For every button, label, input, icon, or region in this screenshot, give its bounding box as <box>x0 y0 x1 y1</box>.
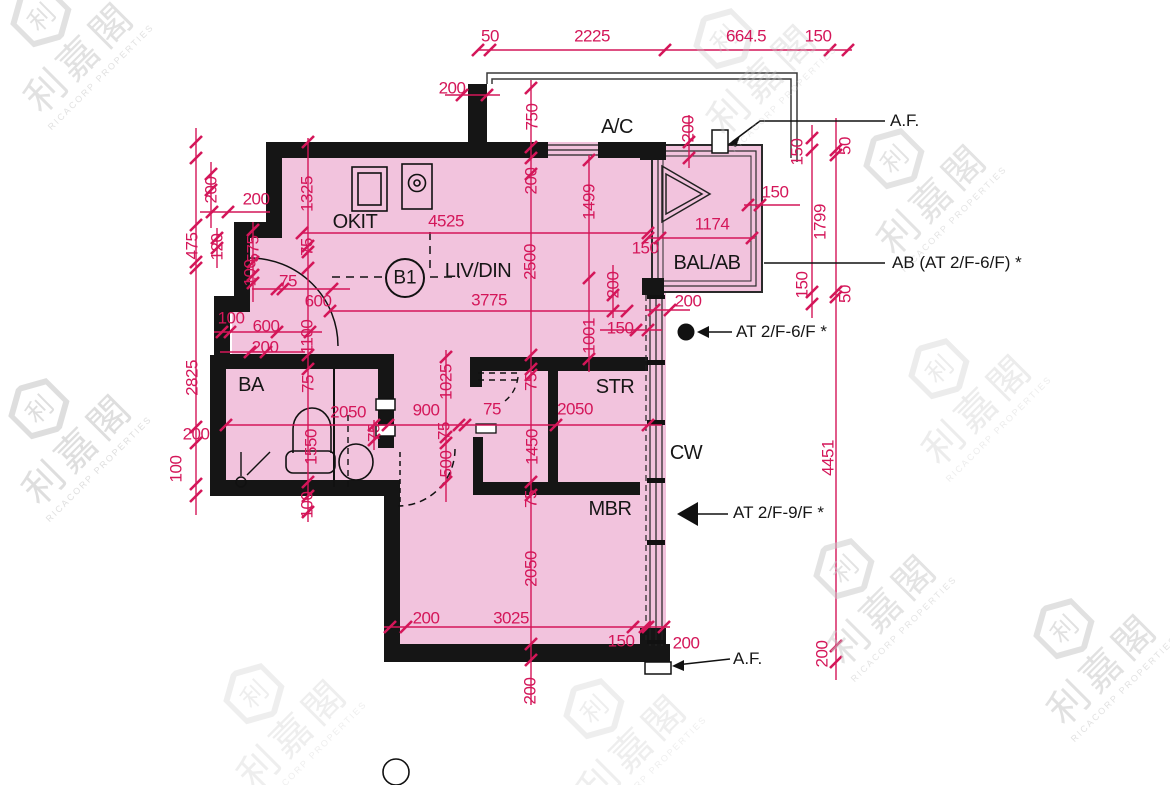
dimension-label: 200 <box>439 80 466 97</box>
wall-segment <box>473 482 640 495</box>
dimension-label: 1325 <box>299 176 316 212</box>
annotation-label: A.F. <box>890 111 919 131</box>
floorplan-page: 利 利嘉閣 RICACORP PROPERTIES 利 利嘉閣 RICACORP… <box>0 0 1170 785</box>
dimension-label: 600 <box>305 293 332 310</box>
room-label: LIV/DIN <box>445 261 512 281</box>
wall-segment <box>548 357 558 483</box>
wall-segment <box>643 648 667 662</box>
wall-segment <box>640 142 666 160</box>
dimension-label: 1799 <box>812 204 829 240</box>
dimension-label: 50 <box>481 28 499 45</box>
dimension-label: 200 <box>523 168 540 195</box>
dimension-label: 200 <box>814 641 831 668</box>
room-label: CW <box>670 443 702 463</box>
wall-segment <box>468 84 487 142</box>
dimension-label: 1025 <box>438 364 455 400</box>
dimension-label: 2050 <box>557 401 593 418</box>
dimension-label: 4525 <box>428 213 464 230</box>
dimension-label: 150 <box>632 240 659 257</box>
af-column-top <box>712 130 728 153</box>
dimension-label: 475 <box>184 233 201 260</box>
dimension-label: 3025 <box>493 610 529 627</box>
af-feature-bottom <box>645 662 671 674</box>
dimension-label: 664.5 <box>726 28 766 45</box>
dimension-label: 200 <box>675 293 702 310</box>
room-label: BAL/AB <box>673 253 740 273</box>
dimension-label: 2050 <box>523 551 540 587</box>
dimension-label: 75 <box>436 422 453 440</box>
wall-segment <box>384 480 400 662</box>
dimension-label: 600 <box>253 318 280 335</box>
dimension-label: 75 <box>299 238 316 256</box>
wall-segment <box>642 278 664 295</box>
annotation-label: AT 2/F-6/F * <box>736 322 827 342</box>
dimension-label: 150 <box>805 28 832 45</box>
dimension-label: 50 <box>837 137 854 155</box>
dimension-label: 100 <box>218 310 245 327</box>
dimension-label: 75 <box>483 401 501 418</box>
dimension-label: 150 <box>608 633 635 650</box>
dimension-label: 2500 <box>522 244 539 280</box>
dimension-label: 200 <box>203 177 220 204</box>
dimension-label: 50 <box>837 285 854 303</box>
dimension-label: 200 <box>252 339 279 356</box>
wall-segment <box>470 357 648 371</box>
annotation-label: AT 2/F-9/F * <box>733 503 824 523</box>
dimension-label: 500 <box>438 451 455 478</box>
floorplan-drawing <box>0 0 1170 785</box>
dimension-label: 1550 <box>303 429 320 465</box>
unit-type-label: B1 <box>393 269 416 288</box>
dimension-label: 575 <box>245 236 262 263</box>
at-2f-9f-marker <box>677 502 698 526</box>
dimension-label: 200 <box>243 191 270 208</box>
dimension-label: 200 <box>673 635 700 652</box>
dimension-label: 200 <box>413 610 440 627</box>
dimension-label: 150 <box>762 184 789 201</box>
wall-segment <box>470 357 482 387</box>
at-2f-6f-marker <box>678 324 695 341</box>
wall-segment <box>210 355 226 496</box>
dimension-label: 3775 <box>471 292 507 309</box>
dimension-label: 900 <box>413 402 440 419</box>
dimension-label: 1001 <box>581 318 598 354</box>
dimension-label: 2050 <box>330 404 366 421</box>
dimension-label: 200 <box>183 426 210 443</box>
dimension-label: 750 <box>524 104 541 131</box>
dimension-label: 150 <box>794 272 811 299</box>
annotation-label: AB (AT 2/F-6/F) * <box>892 253 1022 273</box>
wall-segment <box>473 437 483 490</box>
room-label: OKIT <box>333 212 378 232</box>
room-label: A/C <box>601 117 633 137</box>
dimension-label: 75 <box>523 490 540 508</box>
dimension-label: 1450 <box>524 429 541 465</box>
dimension-label: 2825 <box>184 360 201 396</box>
room-label: BA <box>238 375 264 395</box>
dimension-label: 120 <box>209 234 226 261</box>
dimension-label: 4451 <box>820 440 837 476</box>
legend-circle <box>383 759 409 785</box>
dimension-label: 100 <box>299 492 316 519</box>
dimension-label: 100 <box>242 260 259 287</box>
dimension-label: 1174 <box>695 216 730 233</box>
room-label: MBR <box>589 499 632 519</box>
dimension-label: 150 <box>789 139 806 166</box>
dimension-label: 200 <box>680 116 697 143</box>
dimension-label: 100 <box>168 456 185 483</box>
room-label: STR <box>596 377 635 397</box>
dimension-label: 75 <box>300 375 317 393</box>
dimension-label: 200 <box>605 272 622 299</box>
dimension-label: 1100 <box>299 320 316 355</box>
dimension-label: 75 <box>366 424 383 442</box>
dimension-label: 1499 <box>581 184 598 220</box>
annotation-label: A.F. <box>733 649 762 669</box>
dimension-label: 150 <box>607 320 634 337</box>
dimension-label: 2225 <box>574 28 610 45</box>
dimension-label: 200 <box>522 678 539 705</box>
dimension-label: 75 <box>523 373 540 391</box>
dimension-label: 75 <box>279 273 297 290</box>
